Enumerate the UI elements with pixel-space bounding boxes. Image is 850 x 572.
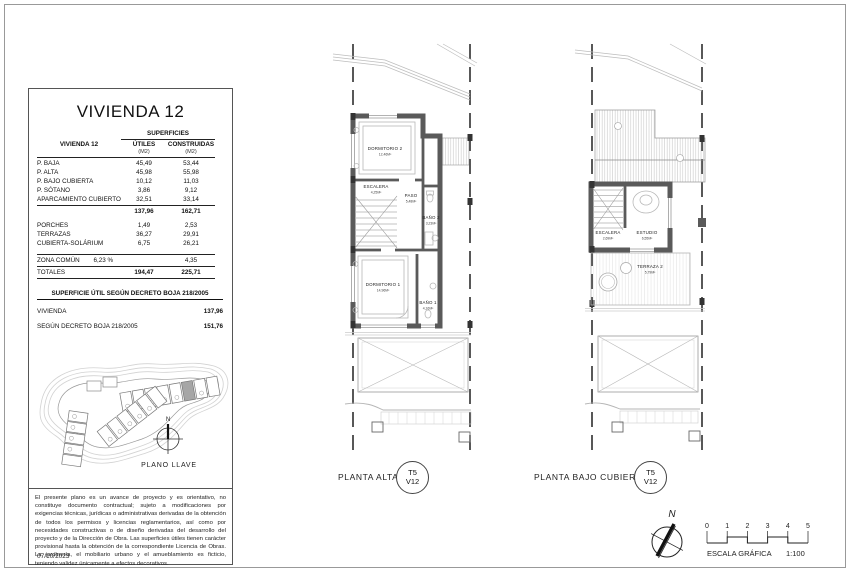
zona-comun-row: ZONA COMÚN 6,23 % xyxy=(37,256,121,265)
zona-comun-construidas: 4,35 xyxy=(167,256,215,265)
scale-tick: 2 xyxy=(745,523,749,530)
table-rule xyxy=(37,254,215,255)
table-row-label: CUBIERTA-SOLÁRIUM xyxy=(37,239,121,248)
unit-badge-planta-bajo-cubierta: T5 V12 xyxy=(634,461,667,494)
room-label: TERRAZA 2 xyxy=(637,264,663,269)
scale-tick: 3 xyxy=(766,523,770,530)
table-row-label: P. BAJA xyxy=(37,159,121,168)
table-row-label: APARCAMIENTO CUBIERTO xyxy=(37,195,121,204)
col-header-utiles: ÚTILES xyxy=(121,140,167,149)
surfaces-row-header: VIVIENDA 12 xyxy=(37,140,121,149)
totales-label: TOTALES xyxy=(37,268,121,277)
table-row-label: P. BAJO CUBIERTA xyxy=(37,177,121,186)
decreto-row-value: 137,96 xyxy=(204,308,223,315)
room-area: 4,25M² xyxy=(371,191,382,195)
scale-tick-numbers: 0 1 2 3 4 5 xyxy=(705,523,810,530)
table-cell: 6,75 xyxy=(121,239,167,248)
x-cross xyxy=(598,336,698,392)
site-units-row-bottom xyxy=(62,411,88,467)
terraza-2-area xyxy=(591,253,690,305)
decreto-table: SUPERFICIE ÚTIL SEGÚN DECRETO BOJA 218/2… xyxy=(37,290,223,330)
unit-badge-planta-alta: T5 V12 xyxy=(396,461,429,494)
neighbor-wall-stub xyxy=(698,218,706,227)
post xyxy=(459,432,470,442)
room-label: ESCALERA xyxy=(595,230,620,235)
plan-sheet: VIVIENDA 12 SUPERFICIES VIVIENDA 12 ÚTIL… xyxy=(0,0,850,572)
table-rule xyxy=(37,266,215,267)
scale-tick: 0 xyxy=(705,523,709,530)
surfaces-group-header: SUPERFICIES xyxy=(121,129,215,140)
terrace-parking-below xyxy=(585,309,705,442)
badge-unit: V12 xyxy=(644,478,657,487)
sheet-date: 07/10/2023 xyxy=(37,553,70,560)
table-cell: 10,12 xyxy=(121,177,167,186)
contour-lines xyxy=(575,44,706,91)
decreto-row-label: SEGÚN DECRETO BOJA 218/2005 xyxy=(37,323,138,330)
table-row-label: P. ALTA xyxy=(37,168,121,177)
scale-bar xyxy=(707,531,808,543)
room-label: PASO xyxy=(405,193,418,198)
subtotal-construidas: 162,71 xyxy=(167,207,215,216)
table-rule xyxy=(37,157,215,158)
site-units-row-mid xyxy=(97,386,167,446)
roof-hatch xyxy=(595,110,705,182)
decreto-header: SUPERFICIE ÚTIL SEGÚN DECRETO BOJA 218/2… xyxy=(37,290,223,300)
totales-construidas: 225,71 xyxy=(167,268,215,277)
table-cell: 26,21 xyxy=(167,239,215,248)
badge-unit: V12 xyxy=(406,478,419,487)
post xyxy=(612,422,623,432)
zona-comun-pct: 6,23 % xyxy=(93,257,113,264)
keyplan-label: PLANO LLAVE xyxy=(141,462,197,469)
room-area: 5,48M² xyxy=(406,200,417,204)
table-cell: 36,27 xyxy=(121,230,167,239)
room-area: 5,79M² xyxy=(645,271,656,275)
room-area: 4,16M² xyxy=(423,307,434,311)
room-area: 3,23M² xyxy=(426,222,437,226)
table-rule xyxy=(37,278,215,279)
scale-ratio: 1:100 xyxy=(786,549,805,558)
keyplan-compass xyxy=(153,424,183,454)
decreto-row: VIVIENDA 137,96 xyxy=(37,308,223,315)
table-row-label: TERRAZAS xyxy=(37,230,121,239)
unit-utiles: (M2) xyxy=(121,149,167,156)
table-cell: 55,98 xyxy=(167,168,215,177)
plan-caption-planta-bajo-cubierta: PLANTA BAJO CUBIERTA xyxy=(534,472,647,482)
plan-caption-planta-alta: PLANTA ALTA xyxy=(338,472,398,482)
scale-tick: 5 xyxy=(806,523,810,530)
floor-plan-planta-bajo-cubierta: ESCALERA 2,69M² ESTUDIO 6,55M² TERRAZA 2… xyxy=(570,38,720,462)
contour-lines xyxy=(333,44,477,100)
info-panel: VIVIENDA 12 SUPERFICIES VIVIENDA 12 ÚTIL… xyxy=(28,88,233,565)
table-cell: 9,12 xyxy=(167,186,215,195)
table-cell: 32,51 xyxy=(121,195,167,204)
decreto-row: SEGÚN DECRETO BOJA 218/2005 151,76 xyxy=(37,323,223,330)
totales-utiles: 194,47 xyxy=(121,268,167,277)
room-area: 2,69M² xyxy=(603,237,614,241)
x-cross xyxy=(358,338,468,392)
site-unit-highlight xyxy=(181,380,195,401)
table-row-label: PORCHES xyxy=(37,221,121,230)
table-cell: 2,53 xyxy=(167,221,215,230)
table-rule xyxy=(37,205,215,206)
room-label: BAÑO 1 xyxy=(419,300,437,305)
floor-plan-planta-alta: DORMITORIO 2 12,46M² ESCALERA 4,25M² PAS… xyxy=(325,38,485,462)
decreto-row-value: 151,76 xyxy=(204,323,223,330)
unit-construidas: (M2) xyxy=(167,149,215,156)
post xyxy=(689,431,700,441)
plant xyxy=(621,263,632,274)
scale-tick: 1 xyxy=(725,523,729,530)
post xyxy=(372,422,383,432)
disclaimer-section: El presente plano es un avance de proyec… xyxy=(29,488,232,564)
terrace-parking-below xyxy=(345,333,471,443)
decreto-row-label: VIVIENDA xyxy=(37,308,66,315)
page-title: VIVIENDA 12 xyxy=(29,102,232,122)
table-cell: 45,98 xyxy=(121,168,167,177)
keyplan-north-label: N xyxy=(166,417,170,423)
scale-tick: 4 xyxy=(786,523,790,530)
subtotal-utiles: 137,96 xyxy=(121,207,167,216)
compass: N xyxy=(643,504,697,568)
room-label: ESCALERA xyxy=(363,184,388,189)
compass-rose xyxy=(643,518,691,567)
key-plan: N PLANO LLAVE xyxy=(29,357,232,475)
room-label: BAÑO 2 xyxy=(422,215,440,220)
room-area: 12,46M² xyxy=(379,153,392,157)
table-cell: 29,91 xyxy=(167,230,215,239)
room-area: 6,55M² xyxy=(642,237,653,241)
room-label: ESTUDIO xyxy=(637,230,658,235)
col-header-construidas: CONSTRUIDAS xyxy=(167,140,215,149)
zona-comun-label: ZONA COMÚN xyxy=(37,257,80,264)
table-row-label: P. SÓTANO xyxy=(37,186,121,195)
scale-label: ESCALA GRÁFICA xyxy=(707,549,772,558)
north-label: N xyxy=(668,509,676,520)
table-cell: 33,14 xyxy=(167,195,215,204)
graphic-scale: 0 1 2 3 4 5 ESCALA GRÁFICA 1:100 xyxy=(700,517,815,562)
table-cell: 11,03 xyxy=(167,177,215,186)
table-cell: 1,49 xyxy=(121,221,167,230)
table-cell: 45,49 xyxy=(121,159,167,168)
room-label: DORMITORIO 1 xyxy=(366,282,401,287)
surfaces-table: SUPERFICIES VIVIENDA 12 ÚTILES CONSTRUID… xyxy=(37,129,219,280)
site-blocks xyxy=(87,377,117,391)
table-cell: 53,44 xyxy=(167,159,215,168)
room-area: 14,96M² xyxy=(377,289,390,293)
room-label: DORMITORIO 2 xyxy=(368,146,403,151)
table-cell: 3,86 xyxy=(121,186,167,195)
